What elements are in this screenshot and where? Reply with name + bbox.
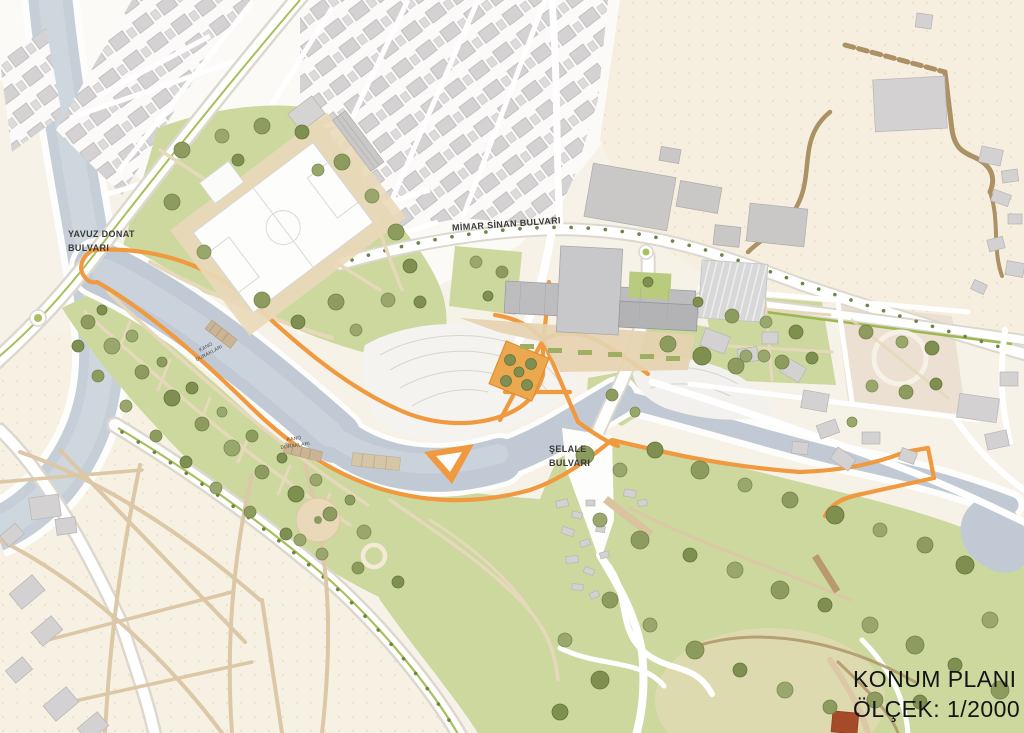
roundabout-west [30,310,46,326]
roundabout-mimar-selale [639,245,653,259]
site-plan-canvas [0,0,1024,733]
street-label-yavuz-donat: YAVUZ DONAT BULVARI [68,228,135,255]
plan-title: KONUM PLANI [853,664,1020,694]
title-block: KONUM PLANI ÖLÇEK: 1/2000 [853,664,1020,725]
street-label-selale: ŞELALE BULVARI [549,443,590,470]
warehouse [873,76,948,132]
plan-scale: ÖLÇEK: 1/2000 [853,694,1020,724]
konum-plani-map: YAVUZ DONAT BULVARI MİMAR SİNAN BULVARI … [0,0,1024,733]
